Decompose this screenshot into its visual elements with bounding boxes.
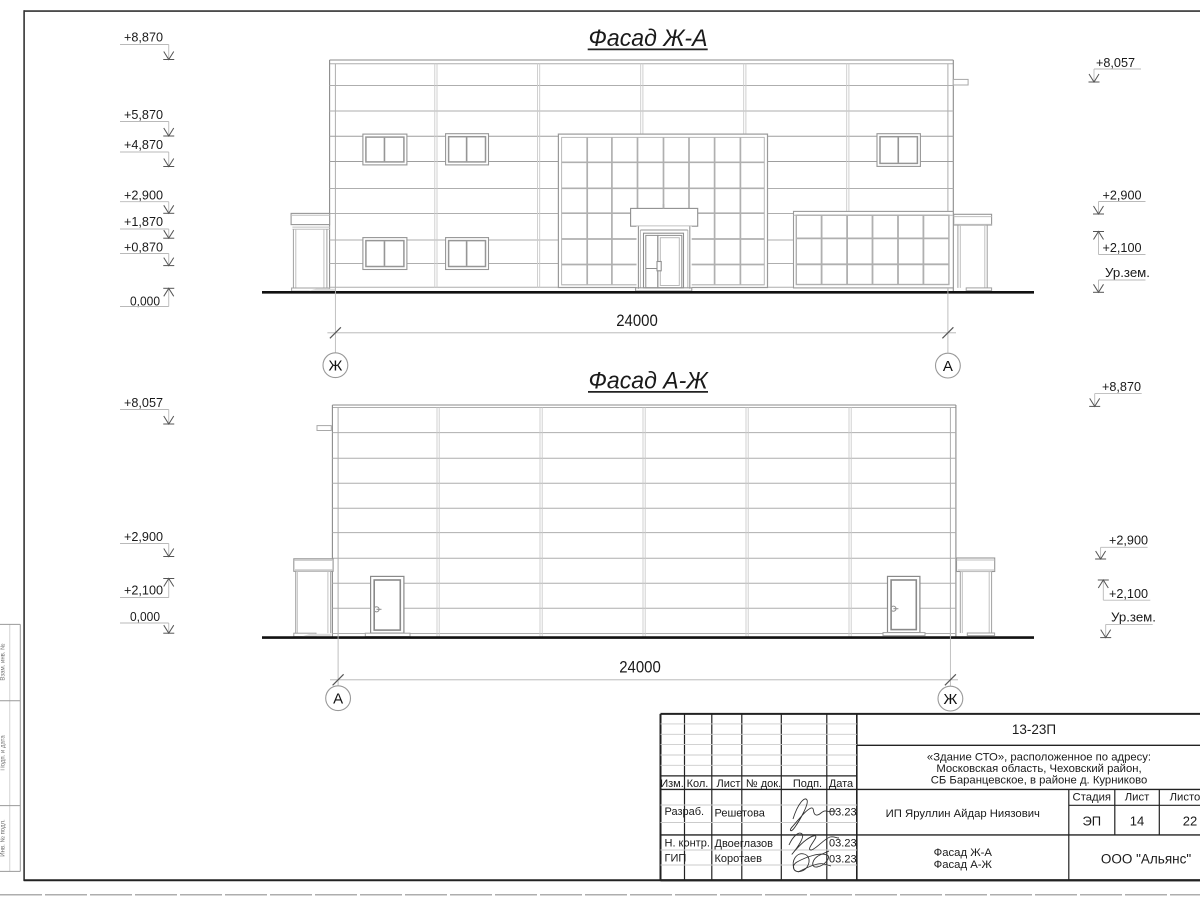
svg-text:Фасад А-Ж: Фасад А-Ж — [589, 368, 710, 395]
svg-text:+2,900: +2,900 — [124, 188, 163, 203]
svg-text:24000: 24000 — [619, 658, 661, 676]
svg-text:Взам. инв. №: Взам. инв. № — [0, 643, 7, 680]
svg-text:Инв. № подл.: Инв. № подл. — [0, 819, 7, 857]
svg-text:Ур.зем.: Ур.зем. — [1105, 265, 1150, 280]
svg-text:0,000: 0,000 — [130, 609, 160, 624]
svg-text:+2,900: +2,900 — [1109, 533, 1148, 548]
svg-text:№ док.: № док. — [746, 778, 781, 790]
svg-text:Подп. и дата: Подп. и дата — [1, 735, 7, 771]
svg-text:Ж: Ж — [328, 358, 342, 375]
svg-text:+4,870: +4,870 — [124, 137, 163, 152]
svg-text:+8,057: +8,057 — [1096, 55, 1135, 70]
svg-text:«Здание СТО», расположенное по: «Здание СТО», расположенное по адресу: — [927, 751, 1151, 763]
svg-text:Фасад Ж-А: Фасад Ж-А — [589, 25, 708, 52]
svg-text:+0,870: +0,870 — [124, 240, 163, 255]
svg-text:03.23: 03.23 — [829, 807, 857, 819]
svg-text:Ур.зем.: Ур.зем. — [1111, 610, 1156, 625]
svg-text:+1,870: +1,870 — [124, 214, 163, 229]
svg-text:ИП Яруллин Айдар Ниязович: ИП Яруллин Айдар Ниязович — [886, 808, 1040, 820]
svg-text:Лист: Лист — [717, 778, 741, 790]
svg-text:+2,100: +2,100 — [1109, 586, 1148, 601]
svg-text:+2,900: +2,900 — [1103, 188, 1142, 203]
svg-text:03.23: 03.23 — [829, 838, 857, 850]
svg-text:СБ Баранцевское, в районе д. К: СБ Баранцевское, в районе д. Курниково — [931, 774, 1148, 786]
svg-text:Подп.: Подп. — [793, 778, 822, 790]
svg-text:+8,870: +8,870 — [1102, 379, 1141, 394]
svg-text:А: А — [333, 691, 343, 708]
svg-text:Фасад Ж-А: Фасад Ж-А — [934, 847, 993, 859]
svg-text:Листов: Листов — [1170, 792, 1200, 804]
svg-text:+5,870: +5,870 — [124, 107, 163, 122]
svg-text:24000: 24000 — [616, 312, 658, 330]
svg-text:14: 14 — [1130, 814, 1144, 829]
svg-text:ЭП: ЭП — [1082, 814, 1101, 829]
svg-text:Решетова: Решетова — [715, 808, 766, 820]
svg-text:Лист: Лист — [1125, 792, 1150, 804]
svg-text:Московская область, Чеховский: Московская область, Чеховский район, — [936, 763, 1141, 775]
svg-text:ГИП: ГИП — [665, 853, 687, 865]
svg-text:13-23П: 13-23П — [1012, 722, 1056, 737]
svg-text:+2,900: +2,900 — [124, 529, 163, 544]
svg-text:03.23: 03.23 — [829, 854, 857, 866]
svg-text:Стадия: Стадия — [1073, 792, 1112, 804]
svg-text:+2,100: +2,100 — [1103, 240, 1142, 255]
svg-text:+8,057: +8,057 — [124, 395, 163, 410]
svg-text:Коротаев: Коротаев — [715, 853, 763, 865]
svg-text:Ж: Ж — [943, 691, 957, 708]
svg-text:Фасад А-Ж: Фасад А-Ж — [934, 859, 993, 871]
svg-text:ООО "Альянс": ООО "Альянс" — [1101, 852, 1191, 867]
svg-text:Изм.: Изм. — [660, 778, 684, 790]
svg-text:+8,870: +8,870 — [124, 30, 163, 45]
svg-text:22: 22 — [1183, 814, 1197, 829]
svg-text:+2,100: +2,100 — [124, 583, 163, 598]
svg-text:Дата: Дата — [829, 778, 854, 790]
svg-text:Кол.: Кол. — [687, 778, 709, 790]
svg-text:Н. контр.: Н. контр. — [665, 838, 710, 850]
svg-text:А: А — [943, 358, 953, 375]
svg-text:Разраб.: Разраб. — [665, 806, 705, 818]
svg-text:Двоеглазов: Двоеглазов — [715, 838, 774, 850]
